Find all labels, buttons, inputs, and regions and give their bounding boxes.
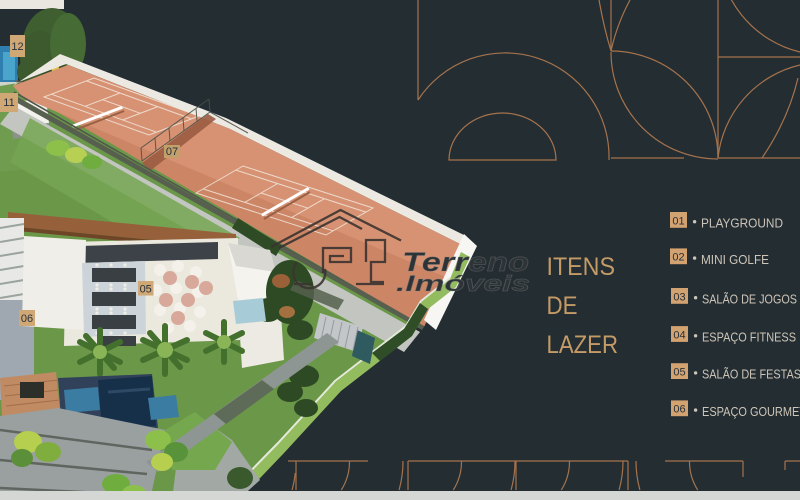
svg-text:01: 01 <box>672 215 684 227</box>
svg-text:MINI GOLFE: MINI GOLFE <box>701 252 769 267</box>
svg-text:PLAYGROUND: PLAYGROUND <box>701 215 783 230</box>
svg-text:07: 07 <box>166 146 178 158</box>
svg-text:02: 02 <box>672 252 684 264</box>
svg-text:06: 06 <box>21 313 33 325</box>
svg-text:11: 11 <box>3 97 14 109</box>
svg-text:12: 12 <box>11 41 23 53</box>
svg-text:ITENS: ITENS <box>547 253 616 281</box>
svg-text:LAZER: LAZER <box>547 331 619 359</box>
svg-text:05: 05 <box>673 367 685 379</box>
svg-text:SALÃO DE FESTAS: SALÃO DE FESTAS <box>702 367 800 382</box>
svg-text:ESPAÇO GOURMET: ESPAÇO GOURMET <box>702 404 800 419</box>
svg-text:04: 04 <box>673 329 685 341</box>
svg-text:SALÃO DE JOGOS: SALÃO DE JOGOS <box>702 291 797 306</box>
svg-text:.Imóveis: .Imóveis <box>396 271 530 296</box>
svg-text:05: 05 <box>140 284 152 296</box>
svg-text:06: 06 <box>673 404 685 416</box>
svg-text:ESPAÇO FITNESS: ESPAÇO FITNESS <box>702 330 796 345</box>
svg-text:03: 03 <box>673 291 685 303</box>
svg-text:DE: DE <box>547 292 578 320</box>
